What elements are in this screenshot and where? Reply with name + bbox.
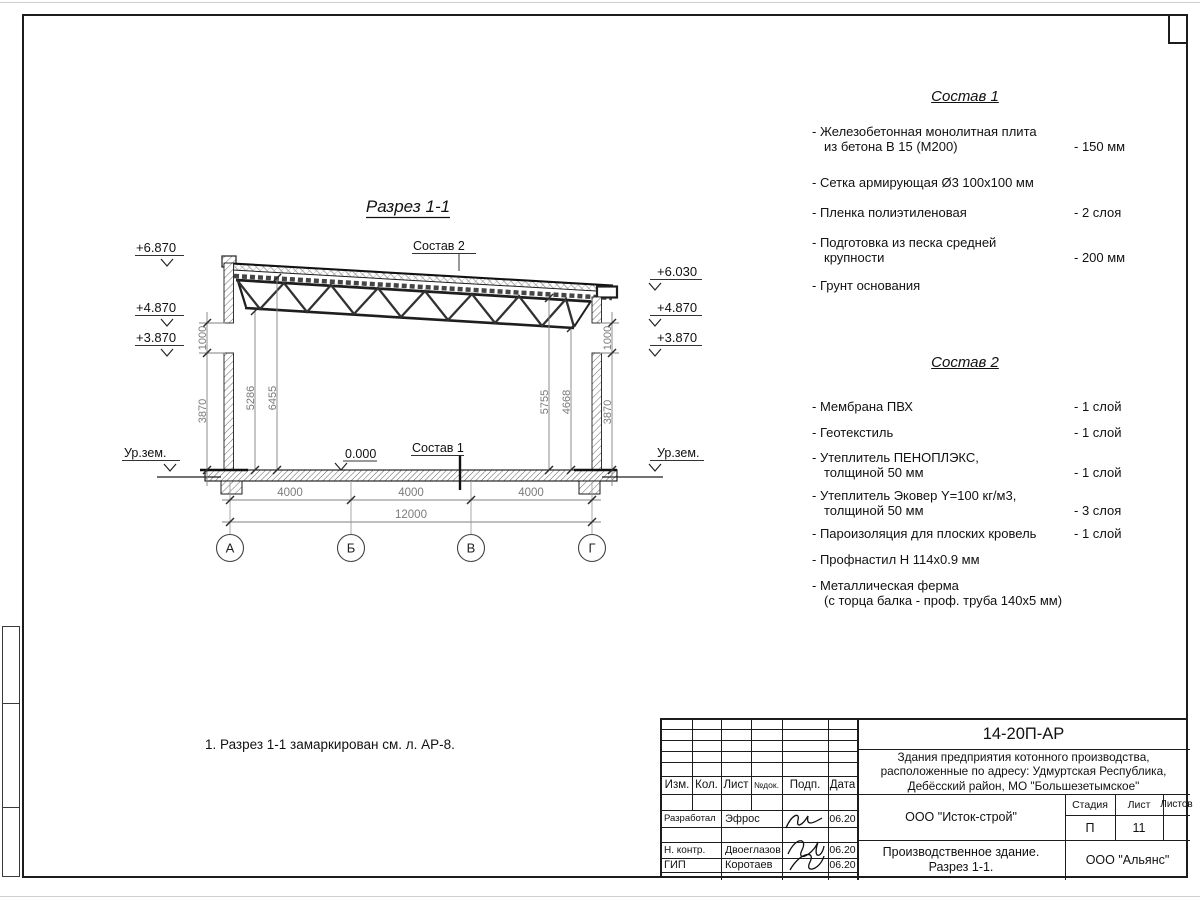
sostav1-item: - Сетка армирующая Ø3 100х100 мм bbox=[812, 175, 1186, 190]
dim-6455: 6455 bbox=[267, 386, 279, 410]
item-value: - 150 мм bbox=[1074, 139, 1186, 154]
item-name: - Геотекстиль bbox=[812, 425, 1074, 440]
object-name: Производственное здание. Разрез 1-1. bbox=[857, 840, 1065, 880]
item-value: - 3 слоя bbox=[1074, 503, 1186, 518]
floor-slab bbox=[205, 470, 617, 481]
view-title-text: Разрез 1-1 bbox=[366, 197, 450, 216]
level-left-6870: +6.870 bbox=[136, 240, 176, 255]
dim-4000-1: 4000 bbox=[277, 487, 303, 499]
sostav1-item: - Подготовка из песка средней крупности … bbox=[812, 235, 1186, 265]
foundation-right bbox=[579, 481, 600, 494]
margin-box-3 bbox=[2, 807, 20, 877]
project-description: Здания предприятия котонного производств… bbox=[857, 749, 1190, 794]
dim-5755: 5755 bbox=[539, 390, 551, 414]
foundation-left bbox=[221, 481, 242, 494]
sostav2-item: - Профнастил Н 114х0.9 мм bbox=[812, 552, 1186, 567]
sostav2-item: - Утеплитель ПЕНОПЛЭКС, толщиной 50 мм -… bbox=[812, 450, 1186, 480]
margin-box-1 bbox=[2, 626, 20, 704]
dim-12000: 12000 bbox=[395, 509, 427, 521]
title-block: 14-20П-АР Здания предприятия котонного п… bbox=[660, 718, 1188, 878]
sostav2-item: - Утеплитель Эковер Y=100 кг/м3, толщино… bbox=[812, 488, 1186, 518]
margin-box-2 bbox=[2, 703, 20, 808]
row-name: Двоеглазов bbox=[725, 842, 782, 858]
truss-bottom-chord bbox=[245, 308, 574, 328]
sostav2-title: Состав 2 bbox=[880, 354, 1050, 371]
contractor-name: ООО "Альянс" bbox=[1065, 840, 1190, 880]
level-right-3870: +3.870 bbox=[657, 330, 697, 345]
level-right-4870: +4.870 bbox=[657, 300, 697, 315]
row-date: 06.20 bbox=[828, 858, 857, 872]
ground-label-right: Ур.зем. bbox=[657, 446, 699, 460]
row-role: ГИП bbox=[664, 858, 721, 872]
building bbox=[157, 256, 663, 494]
ground-label-left: Ур.зем. bbox=[124, 446, 166, 460]
drawing-sheet: Разрез 1-1 bbox=[0, 0, 1200, 900]
left-wall-upper bbox=[224, 263, 234, 323]
level-left-4870: +4.870 bbox=[136, 300, 176, 315]
divider bbox=[662, 751, 857, 752]
horizontal-dimensions: 4000 4000 4000 12000 bbox=[222, 487, 601, 526]
axis-label-v: В bbox=[467, 541, 476, 556]
sostav1-title: Состав 1 bbox=[880, 88, 1050, 105]
divider bbox=[662, 762, 857, 763]
dim-4000-2: 4000 bbox=[398, 487, 424, 499]
dim-left-1000: 1000 bbox=[197, 326, 209, 350]
right-wall-lower bbox=[592, 353, 602, 470]
item-name: - Пленка полиэтиленовая bbox=[812, 205, 1074, 220]
dim-4000-3: 4000 bbox=[518, 487, 544, 499]
level-left-3870: +3.870 bbox=[136, 330, 176, 345]
axis-label-b: Б bbox=[347, 541, 356, 556]
divider bbox=[692, 720, 693, 810]
divider bbox=[662, 740, 857, 741]
row-date: 06.20 bbox=[828, 842, 857, 858]
dim-right-3870: 3870 bbox=[602, 400, 614, 424]
divider bbox=[751, 720, 752, 810]
signatures bbox=[782, 806, 828, 880]
item-value: - 2 слоя bbox=[1074, 205, 1186, 220]
row-date: 06.20 bbox=[828, 810, 857, 827]
zero-level: 0.000 bbox=[345, 447, 376, 461]
sheets-value bbox=[1163, 815, 1190, 840]
item-value: - 1 слой bbox=[1074, 526, 1186, 541]
item-name: - Пароизоляция для плоских кровель bbox=[812, 526, 1074, 541]
row-name: Коротаев bbox=[725, 858, 782, 872]
sheets-label: Листов bbox=[1163, 794, 1190, 815]
col-izm: Изм. bbox=[662, 776, 692, 794]
divider bbox=[721, 720, 722, 880]
signature-2 bbox=[788, 841, 824, 870]
vertical-dimensions: 1000 3870 5286 6455 5755 4668 1000 3870 bbox=[197, 274, 619, 486]
item-value: - 200 мм bbox=[1074, 250, 1186, 265]
dim-4668: 4668 bbox=[561, 390, 573, 414]
level-right-6030: +6.030 bbox=[657, 264, 697, 279]
col-data: Дата bbox=[828, 776, 857, 794]
end-beam bbox=[597, 287, 617, 298]
divider bbox=[662, 729, 857, 730]
col-list: Лист bbox=[721, 776, 751, 794]
left-wall-lower bbox=[224, 353, 234, 470]
item-name: - Утеплитель Эковер Y=100 кг/м3, толщино… bbox=[812, 488, 1074, 518]
axis-label-a: А bbox=[226, 541, 235, 556]
sostav1-item: - Железобетонная монолитная плита из бет… bbox=[812, 124, 1186, 154]
item-name: - Профнастил Н 114х0.9 мм bbox=[812, 552, 1074, 567]
sostav1-item: - Пленка полиэтиленовая - 2 слоя bbox=[812, 205, 1186, 220]
stage-value: П bbox=[1065, 815, 1115, 840]
item-value: - 1 слой bbox=[1074, 465, 1186, 480]
section-drawing: Разрез 1-1 bbox=[0, 0, 760, 620]
item-name: - Утеплитель ПЕНОПЛЭКС, толщиной 50 мм bbox=[812, 450, 1074, 480]
signature-1 bbox=[786, 815, 822, 828]
right-wall-upper bbox=[592, 297, 602, 323]
item-value: - 1 слой bbox=[1074, 425, 1186, 440]
sheet-value: 11 bbox=[1115, 815, 1163, 840]
item-name: - Железобетонная монолитная плита из бет… bbox=[812, 124, 1074, 154]
view-title: Разрез 1-1 bbox=[366, 197, 450, 218]
stage-label: Стадия bbox=[1065, 794, 1115, 815]
frame-corner-box bbox=[1168, 14, 1188, 44]
row-name: Эфрос bbox=[725, 810, 782, 827]
doc-number: 14-20П-АР bbox=[857, 720, 1190, 749]
sostav1-item: - Грунт основания bbox=[812, 278, 1186, 293]
sheet-note: 1. Разрез 1-1 замаркирован см. л. АР-8. bbox=[205, 737, 455, 752]
item-value: - 1 слой bbox=[1074, 399, 1186, 414]
item-name: - Подготовка из песка средней крупности bbox=[812, 235, 1074, 265]
org-name: ООО "Исток-строй" bbox=[857, 794, 1065, 840]
dim-right-1000: 1000 bbox=[602, 326, 614, 350]
page-bottom-edge bbox=[0, 896, 1200, 897]
callout-sostav1: Состав 1 bbox=[412, 441, 464, 455]
sostav2-item: - Металлическая ферма (с торца балка - п… bbox=[812, 578, 1186, 608]
col-ndok: №док. bbox=[751, 776, 782, 794]
callout-sostav2: Состав 2 bbox=[413, 239, 465, 253]
sostav2-item: - Мембрана ПВХ - 1 слой bbox=[812, 399, 1186, 414]
item-name: - Сетка армирующая Ø3 100х100 мм bbox=[812, 175, 1074, 190]
row-role: Н. контр. bbox=[664, 842, 721, 858]
sostav2-item: - Геотекстиль - 1 слой bbox=[812, 425, 1186, 440]
item-name: - Мембрана ПВХ bbox=[812, 399, 1074, 414]
sheet-label: Лист bbox=[1115, 794, 1163, 815]
row-role: Разработал bbox=[664, 810, 721, 827]
sostav2-item: - Пароизоляция для плоских кровель - 1 с… bbox=[812, 526, 1186, 541]
item-name: - Грунт основания bbox=[812, 278, 1074, 293]
col-kol: Кол. bbox=[692, 776, 721, 794]
axis-label-g: Г bbox=[588, 541, 595, 556]
dim-5286: 5286 bbox=[245, 386, 257, 410]
dim-left-3870: 3870 bbox=[197, 399, 209, 423]
item-name: - Металлическая ферма (с торца балка - п… bbox=[812, 578, 1074, 608]
col-podp: Подп. bbox=[782, 776, 828, 794]
